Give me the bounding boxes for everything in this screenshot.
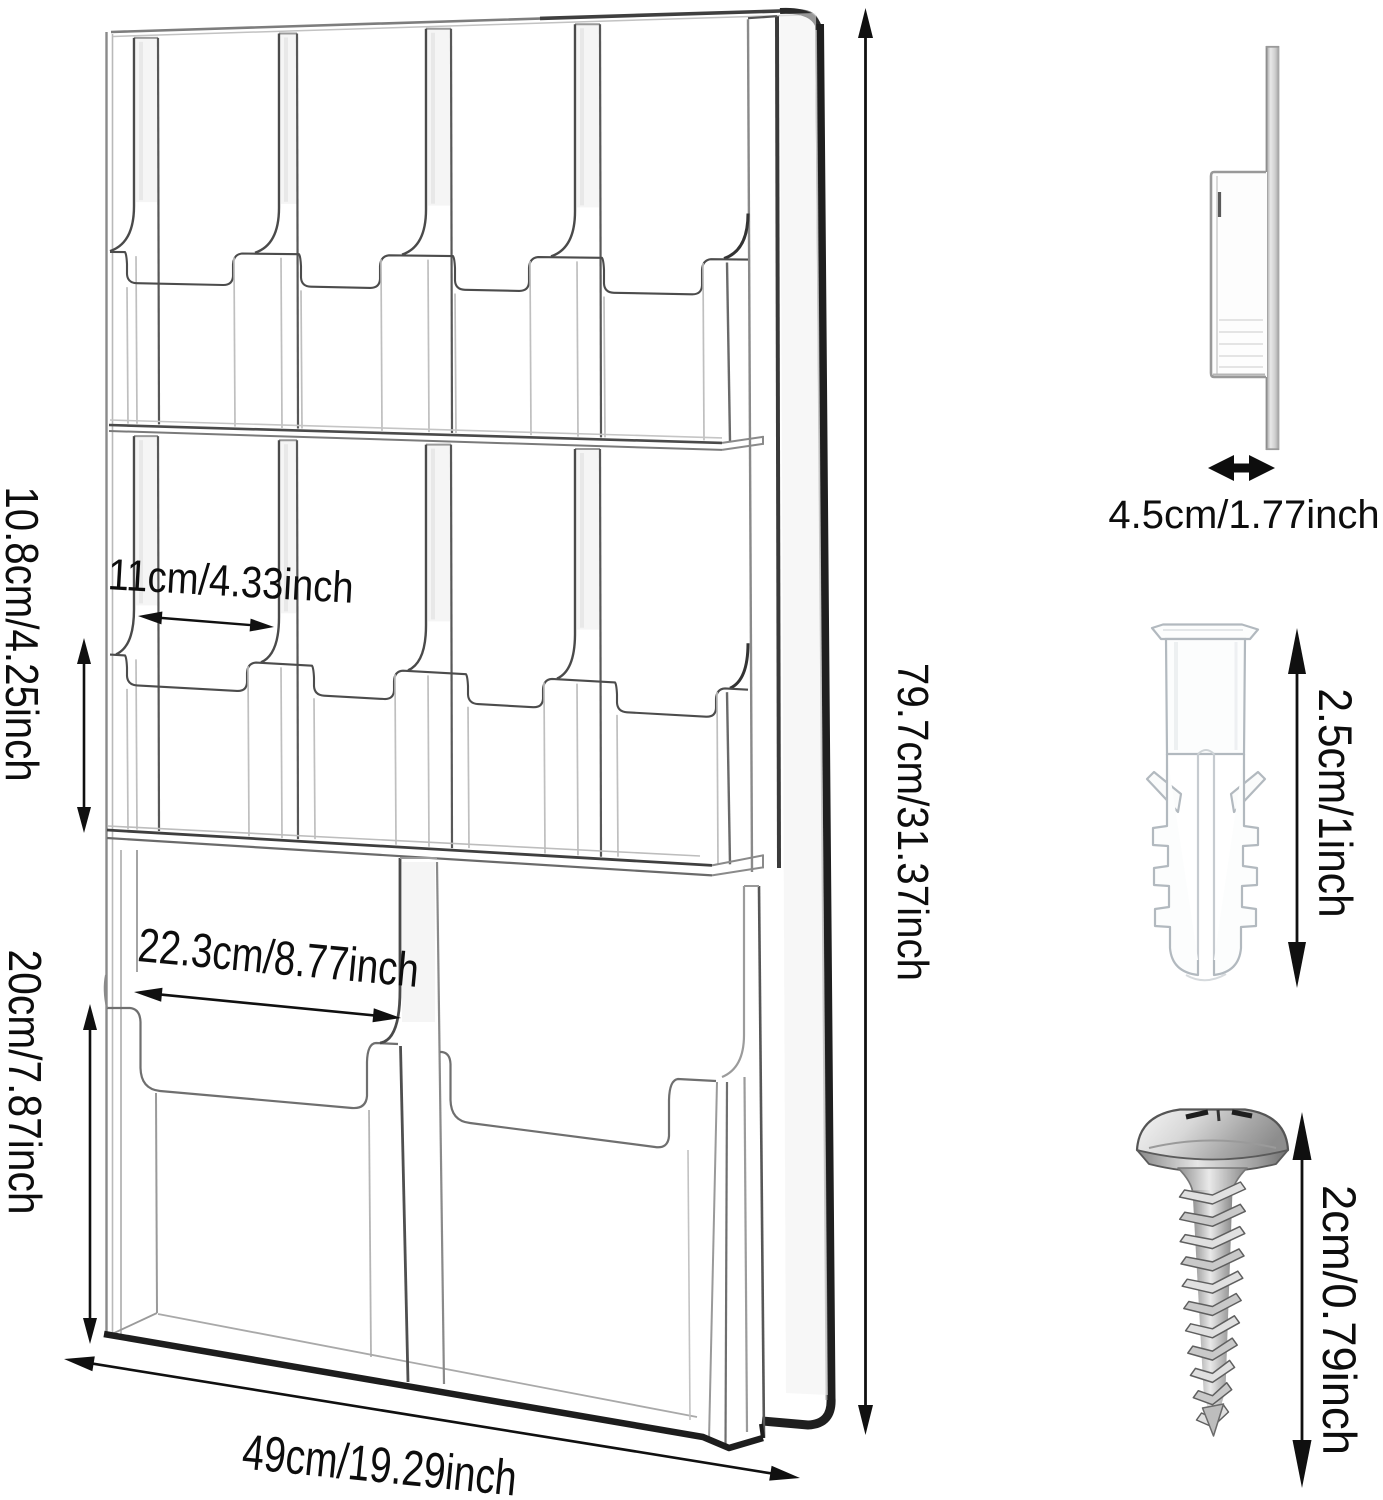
svg-text:4.5cm/1.77inch: 4.5cm/1.77inch bbox=[1108, 493, 1379, 537]
svg-text:10.8cm/4.25inch: 10.8cm/4.25inch bbox=[0, 486, 46, 781]
svg-text:20cm/7.87inch: 20cm/7.87inch bbox=[0, 950, 49, 1215]
svg-text:79.7cm/31.37inch: 79.7cm/31.37inch bbox=[889, 663, 938, 981]
svg-text:2.5cm/1inch: 2.5cm/1inch bbox=[1309, 688, 1361, 917]
svg-text:49cm/19.29inch: 49cm/19.29inch bbox=[240, 1423, 520, 1500]
svg-text:2cm/0.79inch: 2cm/0.79inch bbox=[1313, 1185, 1366, 1455]
svg-text:22.3cm/8.77inch: 22.3cm/8.77inch bbox=[136, 919, 421, 998]
